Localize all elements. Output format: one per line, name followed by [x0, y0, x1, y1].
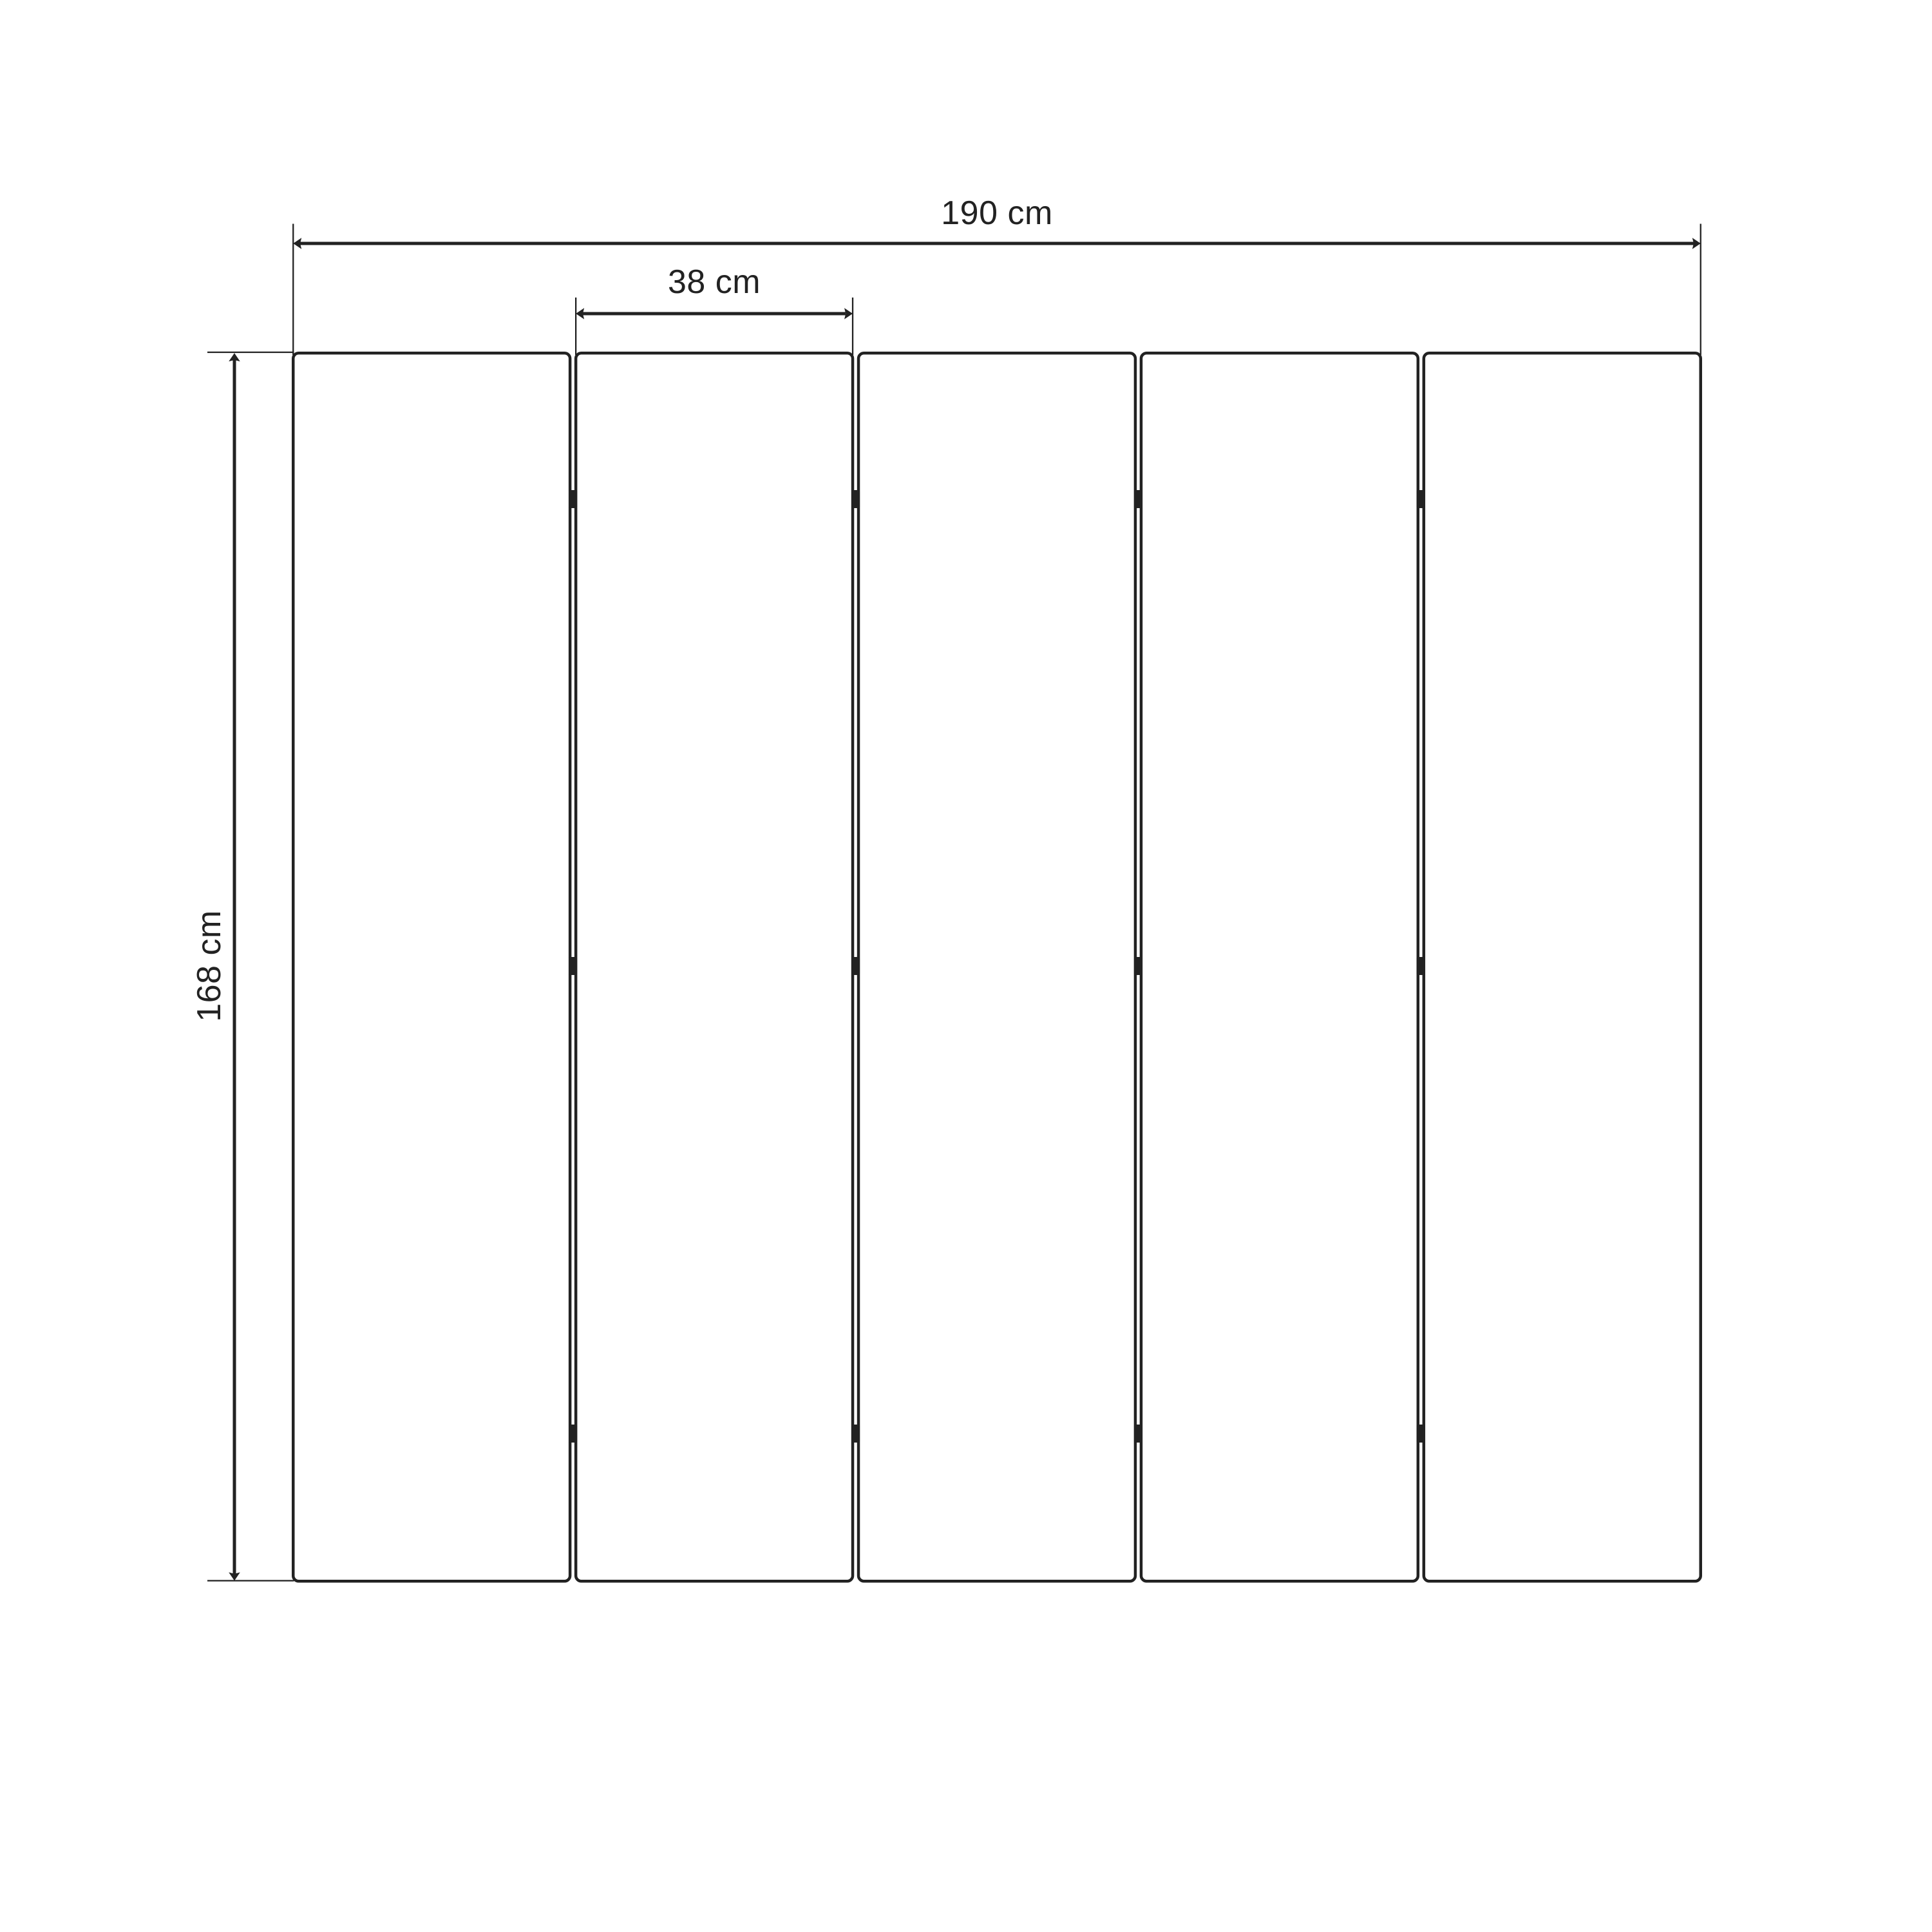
svg-text:168 cm: 168 cm	[191, 910, 228, 1022]
svg-text:38 cm: 38 cm	[668, 263, 761, 301]
svg-text:190 cm: 190 cm	[941, 194, 1053, 232]
